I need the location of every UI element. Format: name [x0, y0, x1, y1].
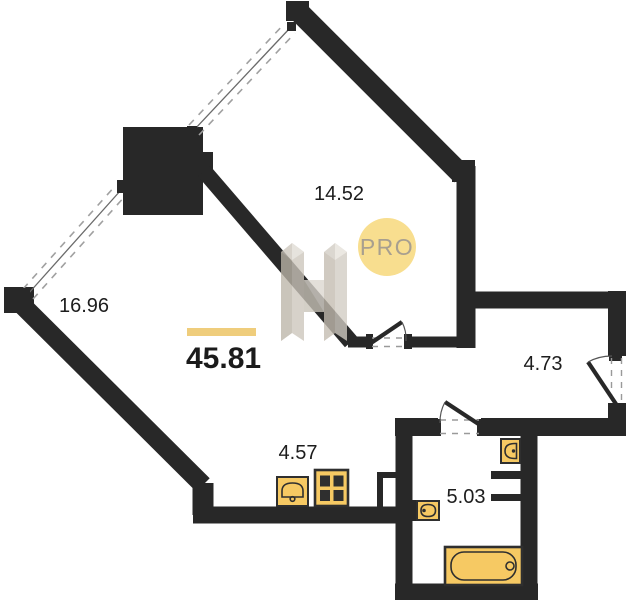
niche-wall — [491, 494, 522, 501]
total-area-underline — [187, 328, 256, 336]
pro-badge-label: PRO — [360, 234, 414, 260]
window-upper-left — [187, 22, 296, 138]
room-area-label-left: 16.96 — [59, 295, 109, 317]
wall-apex-top — [286, 1, 309, 21]
door-leaf — [371, 322, 402, 343]
bathtub-icon — [445, 547, 522, 585]
door-room-top — [371, 322, 406, 347]
wall-ne-diagonal — [297, 10, 462, 175]
door-bathroom — [440, 402, 480, 434]
wall-sw-diagonal — [19, 302, 203, 485]
door-leaf — [445, 402, 480, 425]
room-area-label-kitchen: 4.57 — [279, 442, 318, 464]
kitchen-sink-icon — [277, 477, 308, 506]
room-area-label-bathroom: 5.03 — [447, 486, 486, 508]
total-area-label: 45.81 — [186, 342, 261, 375]
window-tick — [117, 180, 126, 193]
room-area-label-hallway: 4.73 — [524, 353, 563, 375]
floorplan-svg: 14.52 16.96 4.73 4.57 5.03 45.81 PRO — [0, 0, 626, 600]
jamb-tick — [608, 403, 625, 412]
stove-icon — [315, 470, 348, 506]
entry-door — [588, 356, 622, 404]
door-arc — [588, 356, 612, 362]
floorplan-image: 14.52 16.96 4.73 4.57 5.03 45.81 PRO — [0, 0, 626, 600]
window-tick — [187, 126, 197, 138]
window-tick — [21, 288, 30, 297]
niche-wall — [491, 471, 522, 479]
pro-badge: PRO — [358, 218, 416, 276]
washbasin-icon — [405, 500, 439, 521]
jamb-tick — [404, 334, 412, 349]
toilet-icon — [501, 439, 520, 463]
window-lower-left — [21, 180, 126, 299]
builder-logo-watermark — [281, 243, 347, 341]
window-tick — [287, 22, 296, 31]
room-area-label-top: 14.52 — [314, 183, 364, 205]
shaft-wall — [377, 472, 398, 478]
column — [123, 127, 203, 215]
